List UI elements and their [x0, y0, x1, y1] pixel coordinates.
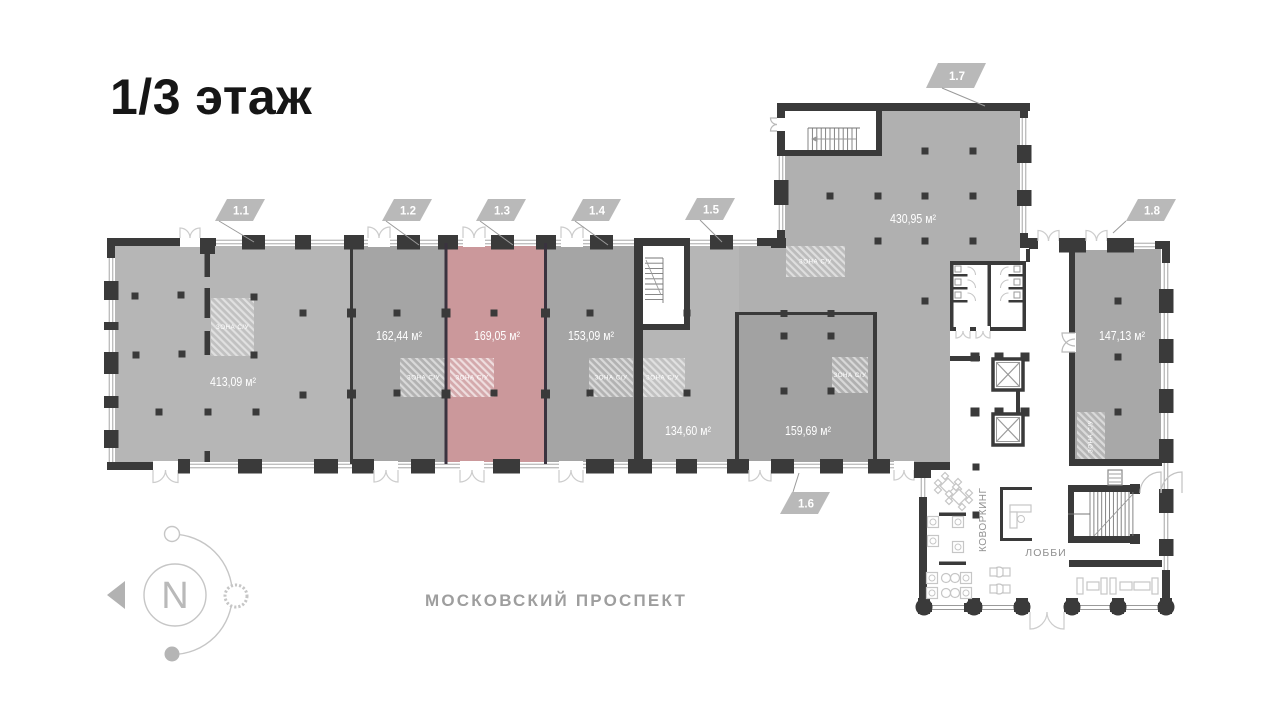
svg-text:1/3 этаж: 1/3 этаж	[110, 69, 312, 125]
svg-text:159,69 м²: 159,69 м²	[785, 423, 832, 438]
svg-text:134,60 м²: 134,60 м²	[665, 423, 712, 438]
svg-text:162,44 м²: 162,44 м²	[376, 328, 423, 343]
svg-text:ЗОНА С/У: ЗОНА С/У	[646, 375, 679, 382]
svg-text:ЗОНА С/У: ЗОНА С/У	[595, 375, 628, 382]
svg-text:1.6: 1.6	[798, 499, 814, 511]
svg-text:413,09 м²: 413,09 м²	[210, 374, 257, 389]
svg-text:430,95 м²: 430,95 м²	[890, 211, 937, 226]
svg-text:ЗОНА С/У: ЗОНА С/У	[1088, 420, 1095, 453]
svg-text:ЗОНА С/У: ЗОНА С/У	[834, 372, 867, 379]
svg-text:1.3: 1.3	[494, 206, 510, 218]
svg-text:147,13 м²: 147,13 м²	[1099, 328, 1146, 343]
svg-text:ЗОНА С/У: ЗОНА С/У	[407, 375, 440, 382]
svg-text:КОВОРКИНГ: КОВОРКИНГ	[978, 487, 989, 552]
svg-text:МОСКОВСКИЙ ПРОСПЕКТ: МОСКОВСКИЙ ПРОСПЕКТ	[425, 591, 687, 610]
svg-text:1.8: 1.8	[1144, 206, 1161, 218]
svg-text:ЗОНА С/У: ЗОНА С/У	[799, 259, 832, 266]
svg-text:1.2: 1.2	[400, 206, 416, 218]
svg-text:1.4: 1.4	[589, 206, 606, 218]
svg-text:ЛОББИ: ЛОББИ	[1025, 547, 1066, 559]
svg-text:N: N	[161, 575, 188, 617]
svg-text:ЗОНА С/У: ЗОНА С/У	[216, 324, 249, 331]
svg-text:153,09 м²: 153,09 м²	[568, 328, 615, 343]
svg-text:169,05 м²: 169,05 м²	[474, 328, 521, 343]
svg-text:1.1: 1.1	[233, 206, 250, 218]
svg-text:1.5: 1.5	[703, 205, 720, 217]
svg-text:ЗОНА С/У: ЗОНА С/У	[456, 375, 489, 382]
svg-text:1.7: 1.7	[949, 71, 965, 83]
